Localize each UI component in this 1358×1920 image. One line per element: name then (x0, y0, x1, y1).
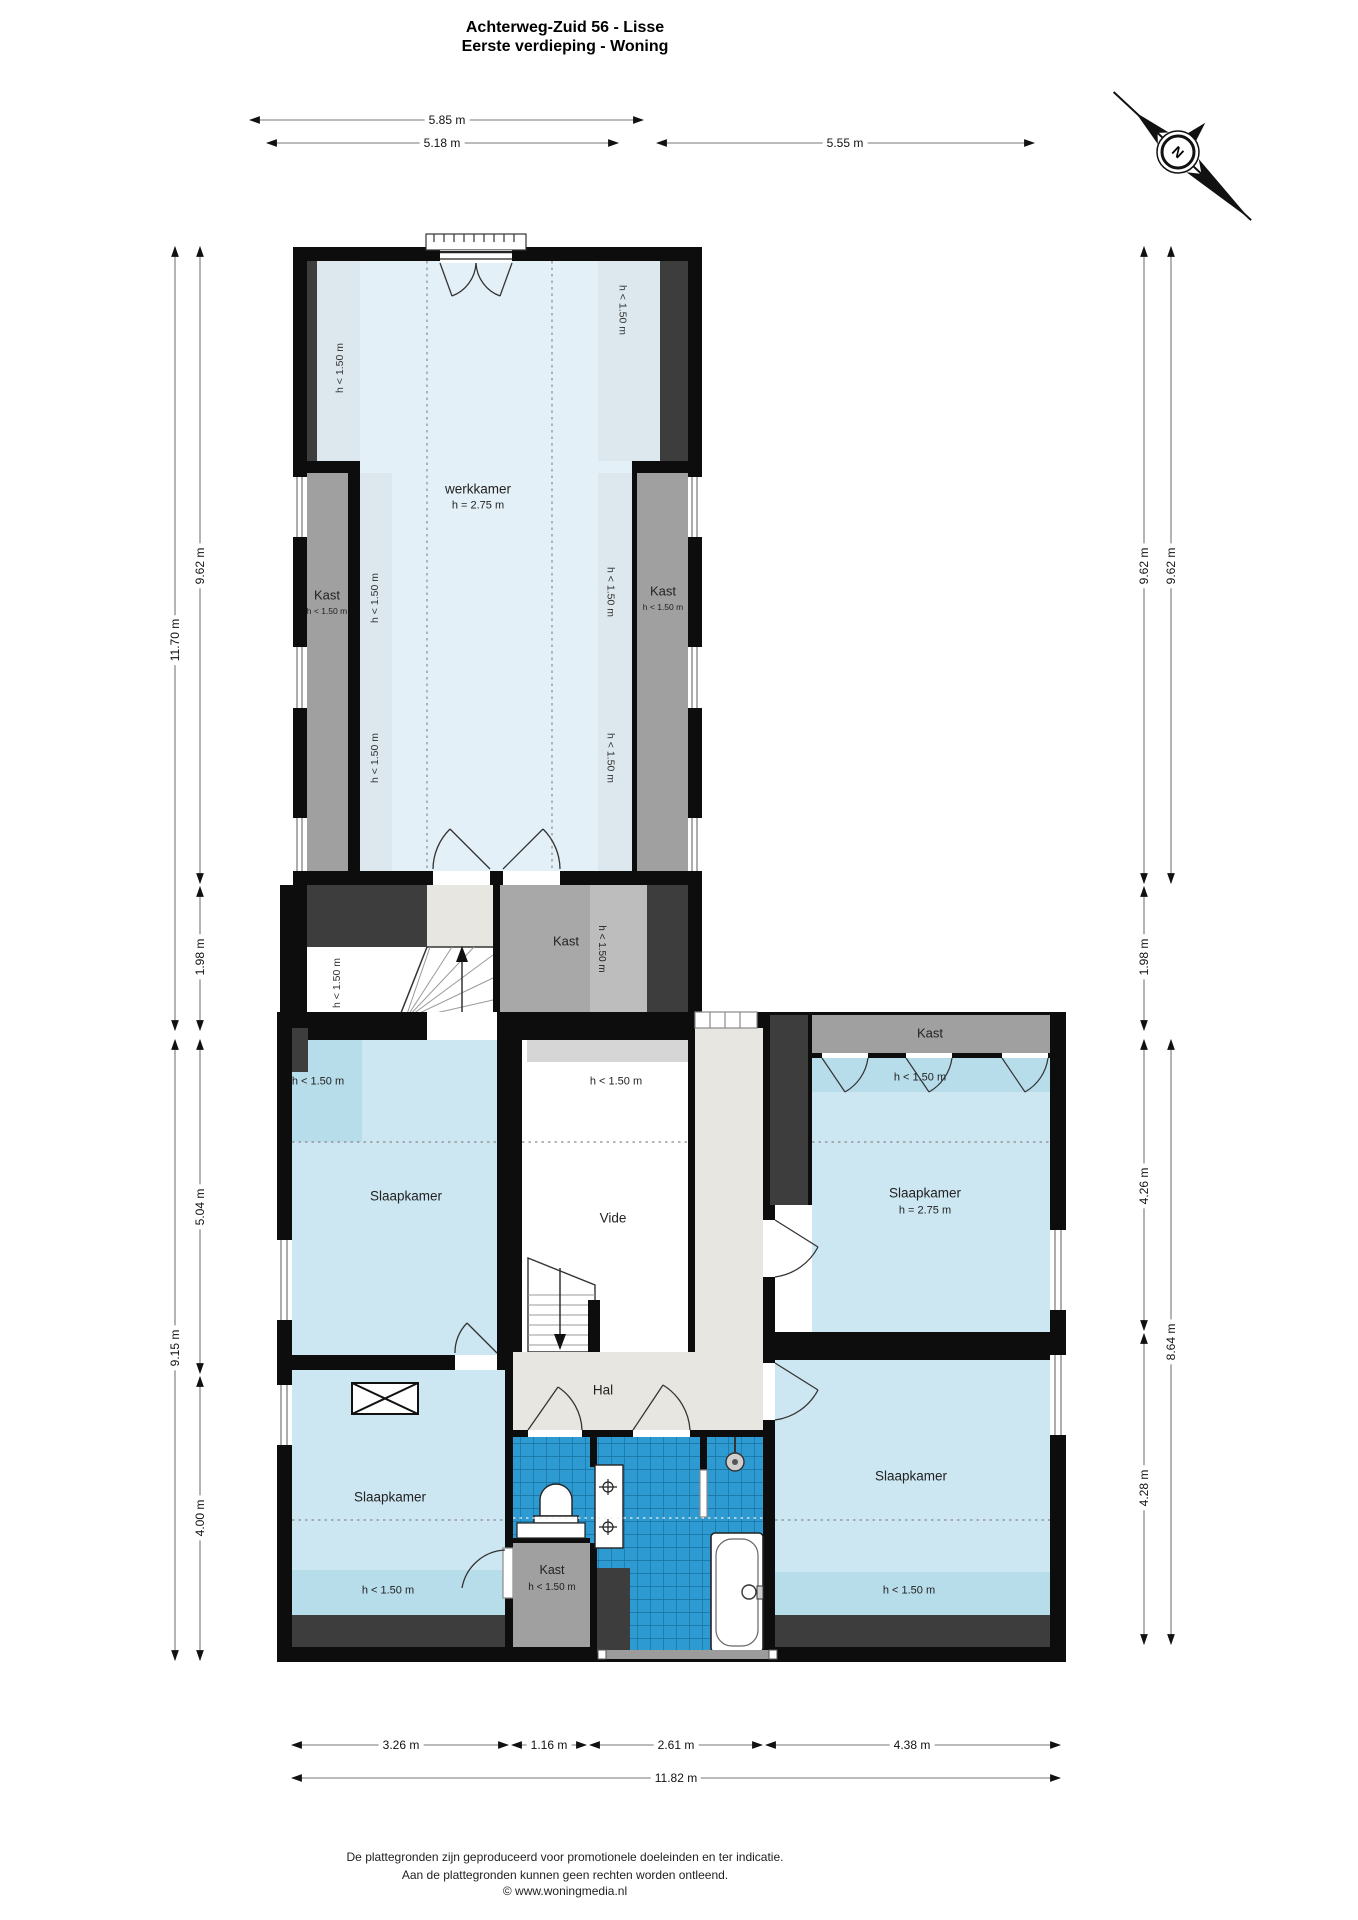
label-h150-room-topright: h < 1.50 m (894, 1073, 946, 1084)
room-label-kast-wing-right: Kast (650, 585, 676, 598)
werkkamer-wing (293, 234, 702, 885)
footer-line3: © www.woningmedia.nl (503, 1885, 627, 1897)
slaapkamer-bottomleft-room (292, 1370, 505, 1647)
label-h150-wing-right-low: h < 1.50 m (605, 733, 616, 783)
slaapkamer-bottomright-room (763, 1360, 1050, 1662)
dim-right-total-bottom: 8.64 m (1165, 1320, 1177, 1365)
dim-right-room-top: 4.26 m (1138, 1164, 1150, 1209)
dim-top-inner-right: 5.55 m (823, 137, 868, 149)
room-label-slaapkamer-topright: Slaapkamer (889, 1186, 961, 1200)
dim-bottom-seg1: 3.26 m (379, 1739, 424, 1751)
dim-top-outer: 5.85 m (425, 114, 470, 126)
bottom-block (277, 1012, 1066, 1662)
label-kast-bath-h150: h < 1.50 m (528, 1583, 576, 1593)
footer-line2: Aan de plattegronden kunnen geen rechten… (402, 1869, 728, 1881)
room-label-slaapkamer-bottomleft: Slaapkamer (354, 1490, 426, 1504)
footer-line1: De plattegronden zijn geproduceerd voor … (347, 1851, 784, 1863)
dim-bottom-seg4: 4.38 m (890, 1739, 935, 1751)
label-h150-wing-left-top: h < 1.50 m (335, 343, 346, 393)
room-label-kast-strip-topright: Kast (917, 1027, 943, 1040)
label-h150-wing-left-mid: h < 1.50 m (370, 573, 381, 623)
dim-bottom-total: 11.82 m (651, 1772, 701, 1784)
label-h150-wing-right-top: h < 1.50 m (617, 285, 628, 335)
dim-right-werkkamer-inner: 9.62 m (1138, 544, 1150, 589)
page-subtitle: Eerste verdieping - Woning (462, 39, 669, 55)
room-label-werkkamer: werkkamer (445, 482, 511, 496)
dim-right-stairs: 1.98 m (1138, 935, 1150, 980)
label-h150-vide: h < 1.50 m (590, 1077, 642, 1088)
dim-left-stairs: 1.98 m (194, 935, 206, 980)
label-h150-wing-left-low: h < 1.50 m (370, 733, 381, 783)
room-label-vide: Vide (600, 1211, 627, 1225)
dim-bottom-seg2: 1.16 m (527, 1739, 572, 1751)
dim-top-inner-left: 5.18 m (420, 137, 465, 149)
dim-left-total-bottom: 9.15 m (169, 1326, 181, 1371)
label-h150-wing-right-mid: h < 1.50 m (605, 567, 616, 617)
label-kast-stairs-h150: h < 1.50 m (596, 925, 606, 973)
room-label-kast-wing-left: Kast (314, 589, 340, 602)
label-h150-room-topleft: h < 1.50 m (292, 1077, 344, 1088)
dim-left-room-bottom: 4.00 m (194, 1496, 206, 1541)
dim-left-room-top: 5.04 m (194, 1185, 206, 1230)
room-label-slaapkamer-topright-height: h = 2.75 m (899, 1206, 951, 1217)
label-h150-stairs-left: h < 1.50 m (332, 958, 343, 1008)
dim-left-total-top: 11.70 m (169, 615, 181, 665)
floorplan-page: Achterweg-Zuid 56 - Lisse Eerste verdiep… (0, 0, 1358, 1920)
room-label-hal: Hal (593, 1383, 613, 1397)
page-title: Achterweg-Zuid 56 - Lisse (466, 20, 664, 36)
dim-bottom-seg3: 2.61 m (654, 1739, 699, 1751)
roof-window-icon (352, 1383, 418, 1414)
dim-right-room-bottom: 4.28 m (1138, 1466, 1150, 1511)
washbasin-icon (595, 1465, 623, 1548)
room-label-werkkamer-height: h = 2.75 m (452, 501, 504, 512)
label-h150-room-bottomright: h < 1.50 m (883, 1586, 935, 1597)
label-kast-wing-right-h150: h < 1.50 m (643, 603, 683, 612)
room-label-kast-stairs: Kast (553, 935, 579, 948)
room-label-slaapkamer-bottomright: Slaapkamer (875, 1469, 947, 1483)
dim-left-werkkamer: 9.62 m (194, 544, 206, 589)
compass-icon (1099, 63, 1278, 236)
bathtub-icon (711, 1533, 763, 1652)
label-h150-room-bottomleft: h < 1.50 m (362, 1586, 414, 1597)
room-label-slaapkamer-topleft: Slaapkamer (370, 1189, 442, 1203)
room-label-kast-bath: Kast (539, 1564, 564, 1577)
dim-right-werkkamer-outer: 9.62 m (1165, 544, 1177, 589)
label-kast-wing-left-h150: h < 1.50 m (307, 607, 347, 616)
